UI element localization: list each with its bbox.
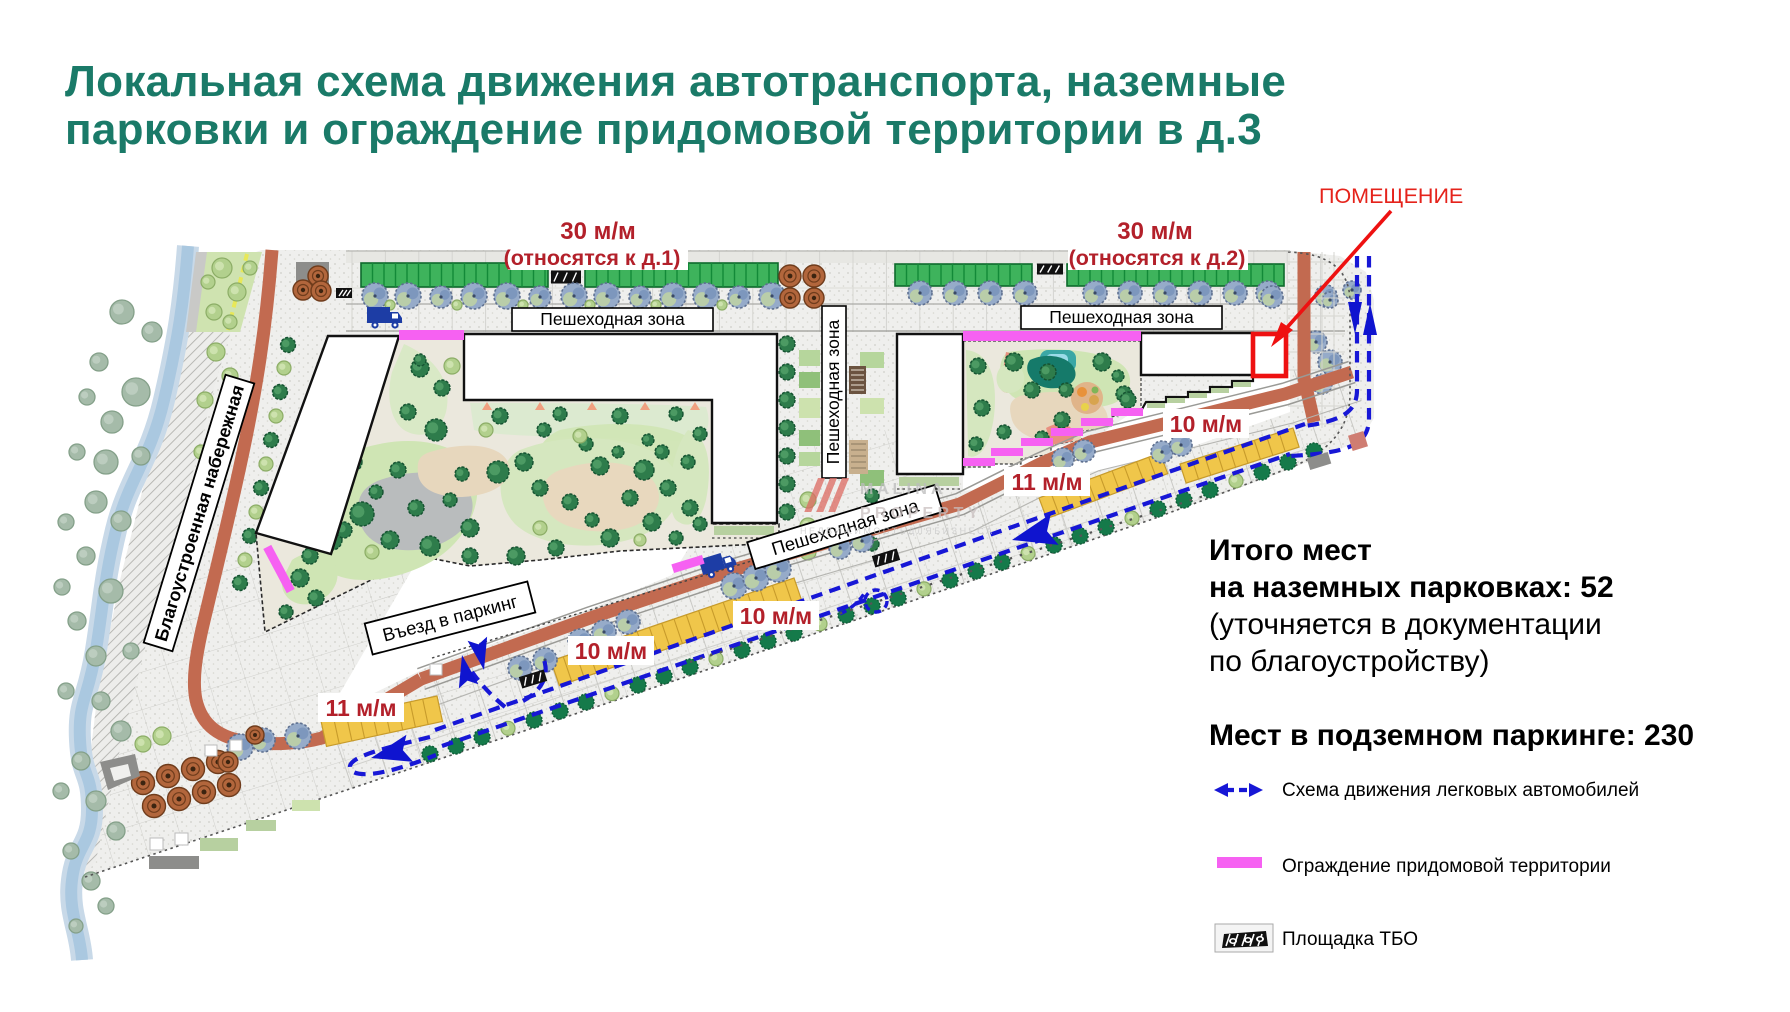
svg-text:Н Е Д В И Ж И М О С Т Ь Д Л: Н Е Д В И Ж И М О С Т Ь Д Л Я Б И З Н Е …: [800, 526, 992, 536]
svg-text:Пешеходная зона: Пешеходная зона: [540, 309, 685, 329]
svg-text:P R O P E R T Y: P R O P E R T Y: [860, 505, 979, 522]
svg-text:Схема движения легковых автомо: Схема движения легковых автомобилей: [1282, 780, 1639, 801]
svg-text:10 м/м: 10 м/м: [1170, 411, 1242, 437]
svg-text:10 м/м: 10 м/м: [740, 603, 812, 629]
svg-text:30 м/м: 30 м/м: [560, 218, 636, 245]
svg-text:Площадка ТБО: Площадка ТБО: [1282, 929, 1418, 950]
svg-text:на наземных парковках: 52: на наземных парковках: 52: [1209, 571, 1614, 604]
svg-text:Ограждение придомовой территор: Ограждение придомовой территории: [1282, 856, 1611, 877]
svg-text:Пешеходная зона: Пешеходная зона: [823, 319, 843, 464]
svg-text:Мест в подземном паркинге: 230: Мест в подземном паркинге: 230: [1209, 719, 1694, 752]
svg-text:(уточняется в документации: (уточняется в документации: [1209, 608, 1602, 641]
svg-text:10 м/м: 10 м/м: [575, 638, 647, 664]
svg-text:по благоустройству): по благоустройству): [1209, 645, 1489, 678]
svg-text:11 м/м: 11 м/м: [1011, 469, 1082, 495]
svg-text:(относятся к д.1): (относятся к д.1): [504, 246, 681, 270]
svg-text:11 м/м: 11 м/м: [325, 695, 396, 721]
svg-text:ПОМЕЩЕНИЕ: ПОМЕЩЕНИЕ: [1319, 184, 1463, 208]
svg-text:Итого мест: Итого мест: [1209, 534, 1372, 567]
svg-text:Пешеходная зона: Пешеходная зона: [1049, 307, 1194, 327]
svg-text:(относятся к д.2): (относятся к д.2): [1069, 246, 1246, 270]
svg-text:M A L I N A: M A L I N A: [860, 481, 943, 498]
svg-text:30 м/м: 30 м/м: [1117, 218, 1193, 245]
